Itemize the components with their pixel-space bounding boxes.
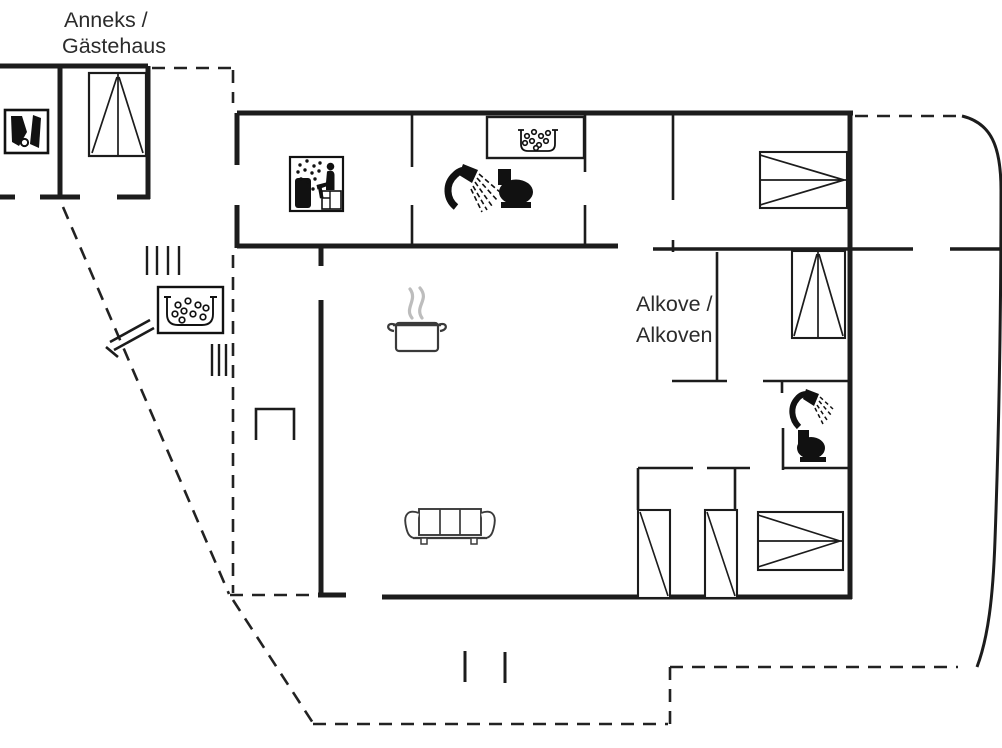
plot-boundary-curve	[962, 116, 1001, 667]
double-bed-icon-top-right	[760, 152, 847, 208]
floor-plan: Anneks / Gästehaus Alkove / Alkoven	[0, 0, 1002, 748]
toilet-icon-bathroom-1	[498, 169, 533, 208]
single-bed-icon-right	[705, 510, 737, 598]
wardrobe-bed-icon-annex	[89, 73, 146, 156]
alcove-label-line1: Alkove /	[636, 292, 713, 316]
alcove-bed-icon	[792, 251, 845, 338]
single-bed-icon-left	[638, 510, 670, 598]
sofa-icon	[405, 509, 495, 544]
annex-label-line1: Anneks /	[64, 8, 148, 32]
hot-tub-icon	[158, 287, 223, 333]
floor-plan-drawing: Anneks / Gästehaus Alkove / Alkoven	[0, 0, 1002, 748]
cooking-pot-icon	[388, 288, 446, 351]
washbasin-icon	[487, 117, 584, 158]
shower-icon-bathroom-1	[448, 164, 501, 212]
double-bed-icon-bottom-right	[758, 512, 843, 570]
alcove-label: Alkove / Alkoven	[636, 292, 713, 347]
shower-icon-annex-entry	[5, 110, 48, 153]
annex-label: Anneks / Gästehaus	[62, 8, 166, 58]
fireplace-bracket	[256, 409, 294, 440]
sauna-icon	[290, 157, 343, 211]
terrace-step-marks	[465, 651, 505, 683]
alcove-label-line2: Alkoven	[636, 323, 713, 347]
shower-icon-bathroom-2	[792, 389, 833, 427]
annex-label-line2: Gästehaus	[62, 34, 166, 58]
bench-icon	[106, 320, 154, 357]
toilet-icon-bathroom-2	[797, 430, 826, 462]
